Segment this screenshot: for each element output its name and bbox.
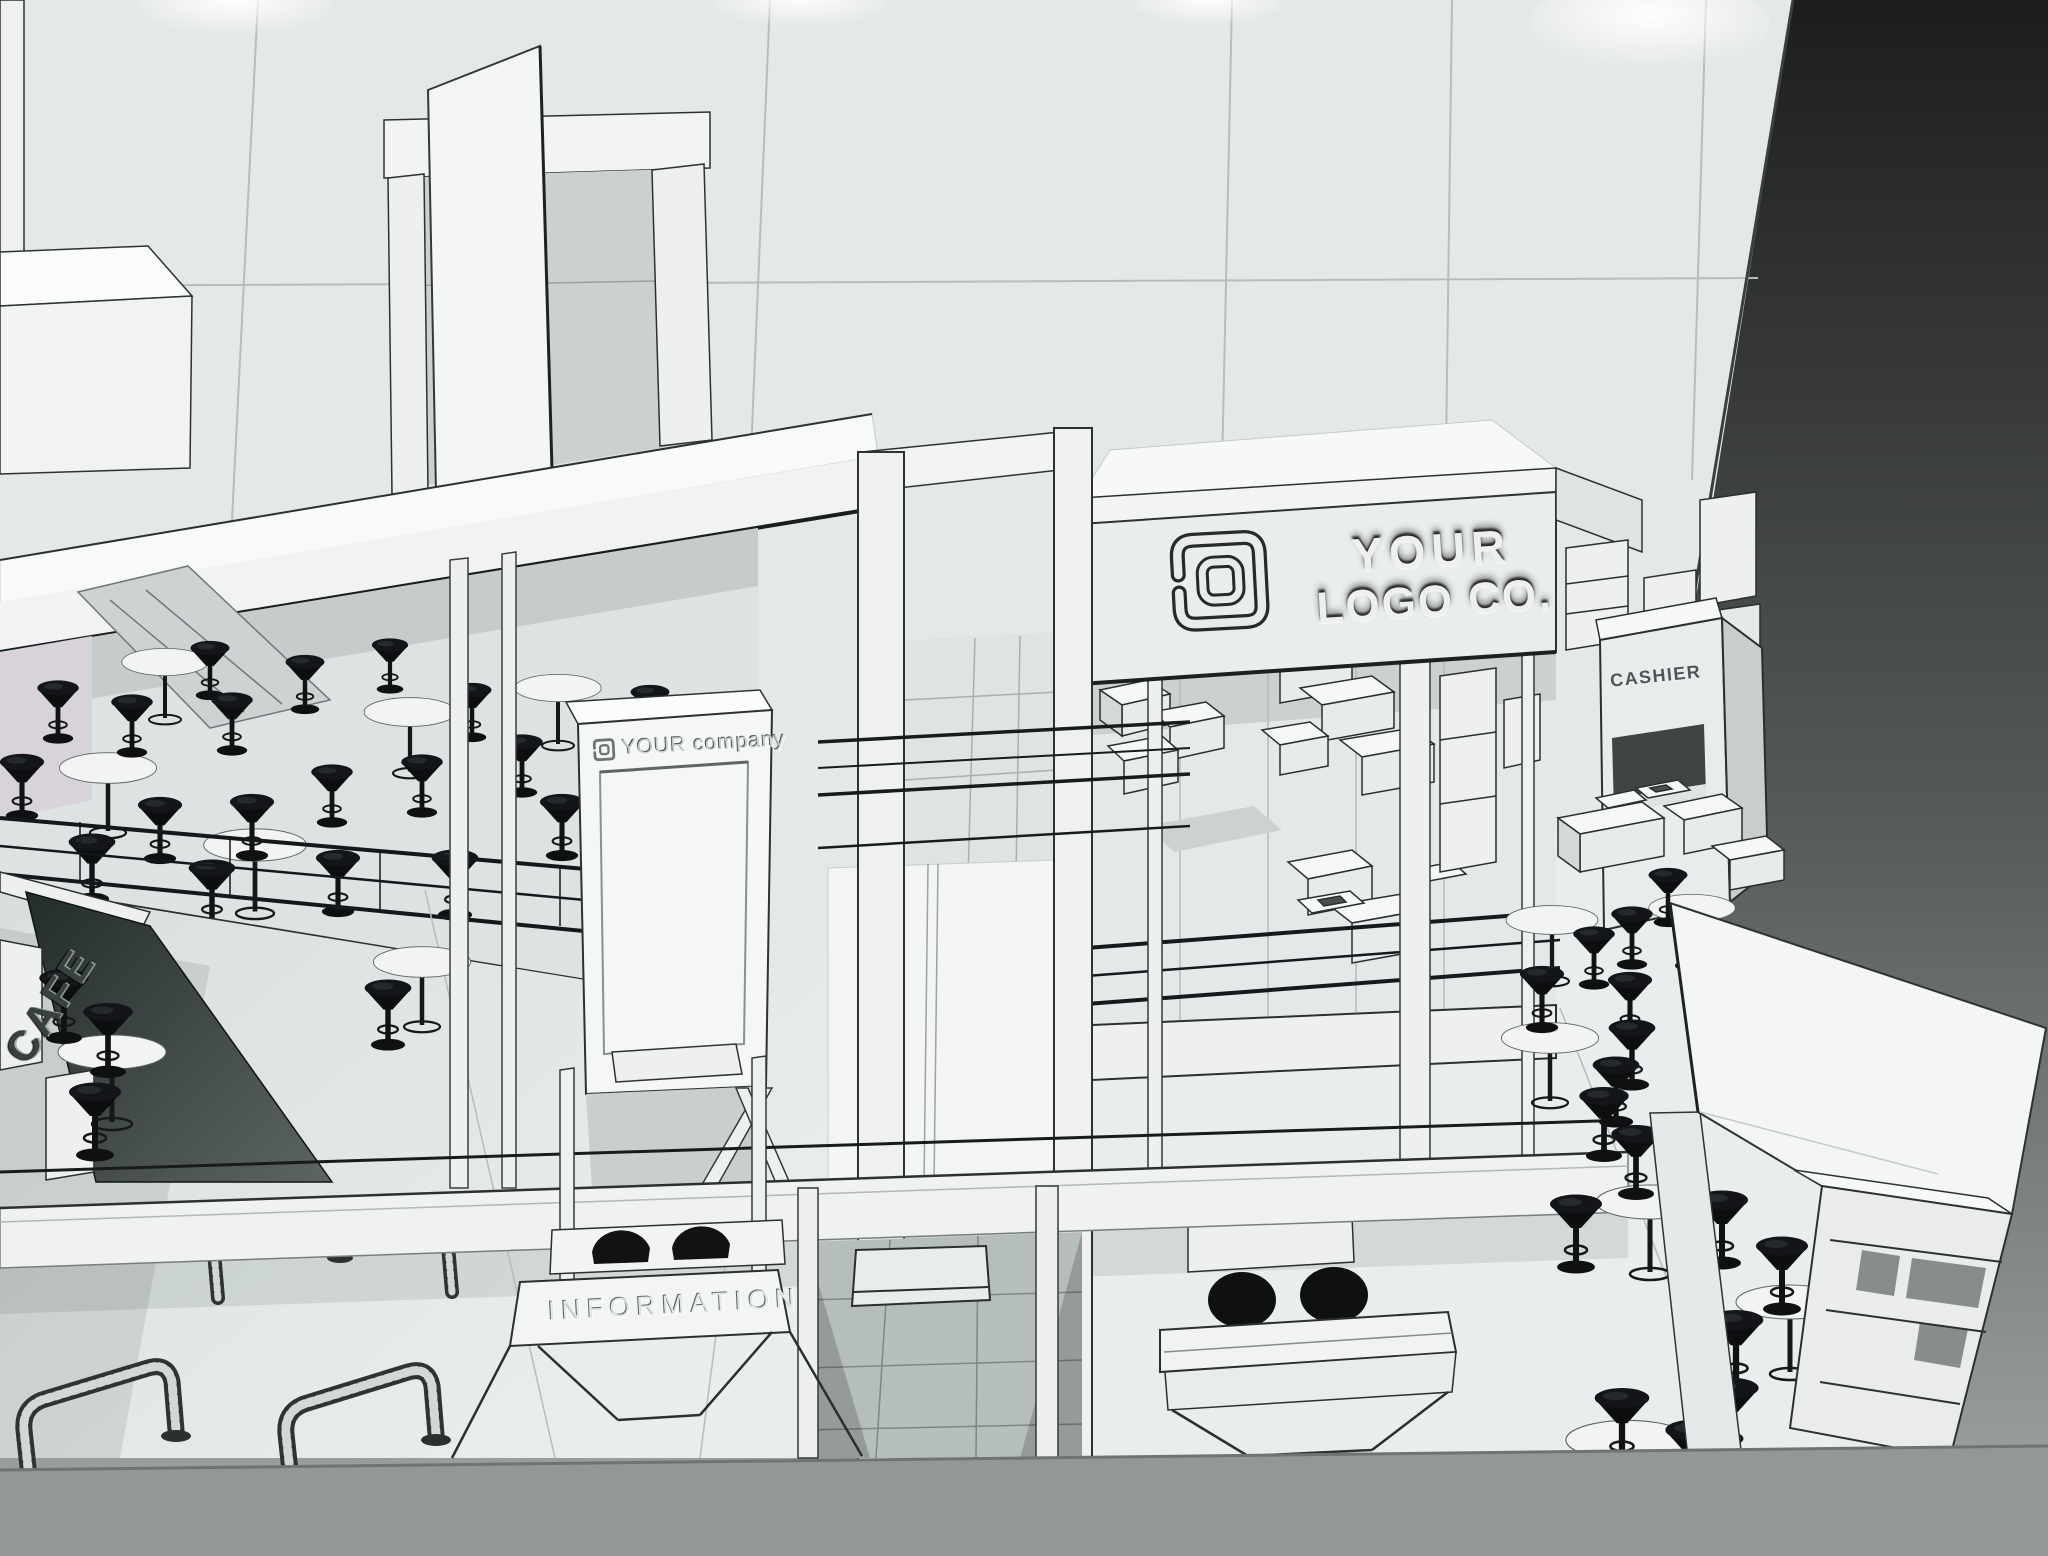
exhibition-render: YOUR LOGO CO. YOUR company INFORMATION C… xyxy=(0,0,2048,1556)
fascia-sign: YOUR LOGO CO. xyxy=(1305,518,1561,635)
company-logo-icon xyxy=(589,737,616,762)
scene-3d-model xyxy=(0,0,2048,1556)
